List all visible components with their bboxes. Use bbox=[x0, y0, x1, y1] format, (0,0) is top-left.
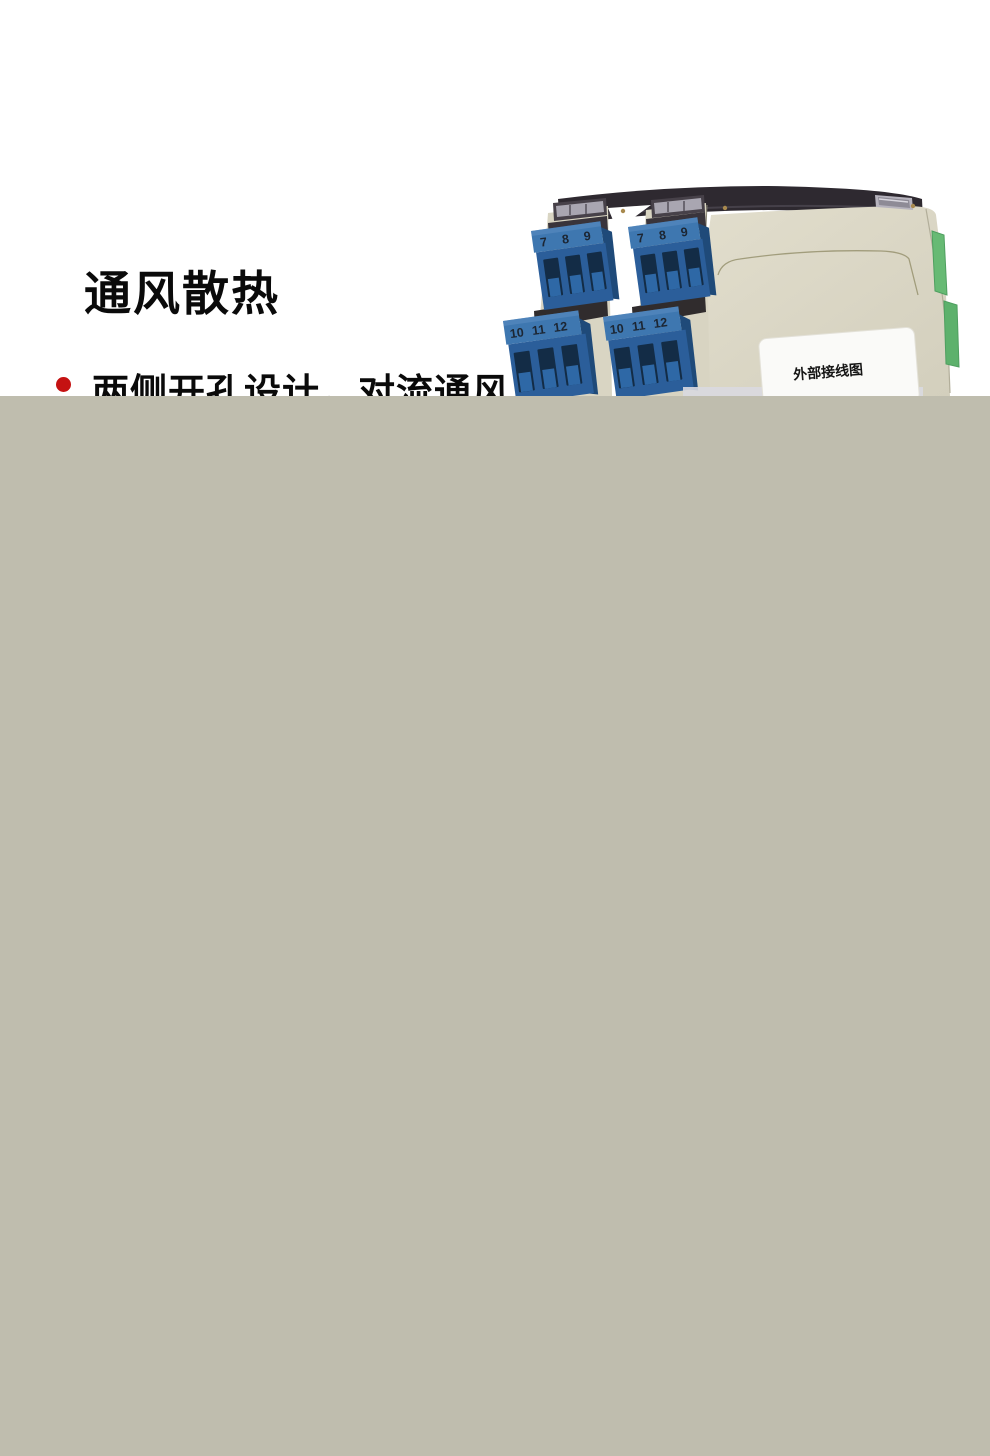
terminal-block-upper-module-1: 7 8 9 bbox=[531, 220, 621, 310]
isolator-modules-illustration: 7 8 9 10 11 12 bbox=[498, 183, 966, 398]
product-photo: 7 8 9 10 11 12 bbox=[498, 183, 966, 398]
terminal-number: 12 bbox=[553, 319, 569, 335]
bullet-marker-icon bbox=[56, 377, 71, 392]
terminal-number: 10 bbox=[509, 325, 525, 341]
terminal-block-lower-module-2: 10 11 12 bbox=[603, 305, 700, 398]
green-connector-lower bbox=[944, 301, 959, 367]
terminal-number: 11 bbox=[631, 318, 646, 334]
page-title: 通风散热 bbox=[84, 266, 280, 322]
terminal-number: 10 bbox=[609, 321, 625, 337]
terminal-number: 12 bbox=[653, 315, 669, 331]
terminal-block-lower-module-1: 10 11 12 bbox=[503, 309, 600, 398]
terminal-number: 11 bbox=[531, 322, 546, 338]
green-connector-upper bbox=[932, 231, 947, 295]
screw-icon bbox=[621, 209, 625, 213]
screw-icon bbox=[911, 204, 915, 208]
terminal-block-upper-module-2: 7 8 9 bbox=[628, 216, 718, 306]
wiring-diagram-label: 外部接线图 bbox=[758, 327, 919, 398]
page: 7 8 9 10 11 12 bbox=[0, 0, 990, 1456]
screw-icon bbox=[723, 206, 727, 210]
gray-overlay bbox=[0, 396, 990, 1456]
